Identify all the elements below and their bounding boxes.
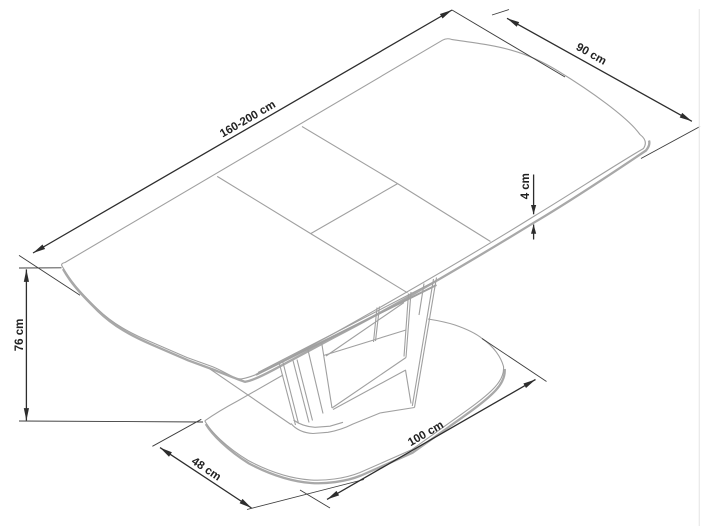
svg-text:4 cm: 4 cm	[520, 173, 532, 199]
svg-text:76 cm: 76 cm	[14, 319, 26, 352]
